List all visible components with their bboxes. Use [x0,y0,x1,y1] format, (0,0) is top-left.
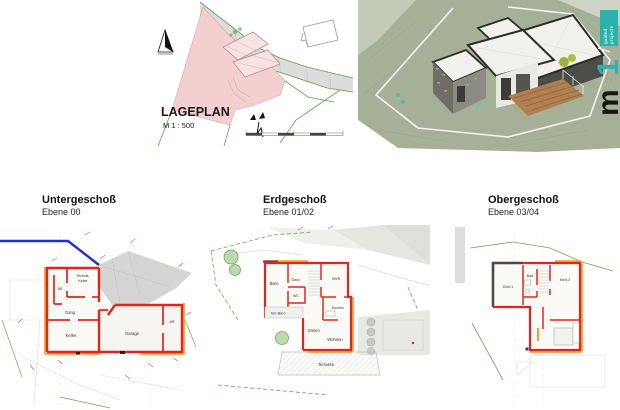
siteplan-scale: M 1 : 500 [163,121,194,130]
eg-room-terrasse: Terrasse [318,362,335,367]
plan-subtitle-untergeschoss: Ebene 00 [42,207,116,217]
plan-title-untergeschoss: Untergeschoß [42,194,116,207]
floorplan-erdgeschoss: Büro Gard. WC HWR Kochen Terr-Büro Essen… [208,225,430,410]
ug-room-ar-left: AR [58,287,63,291]
logo-letter-m: m [592,88,620,116]
eg-room-gard: Gard. [292,278,301,282]
plan-title-erdgeschoss: Erdgeschoß [263,194,327,207]
north-arrow-icon [158,30,173,54]
eg-kitchen-island [326,311,335,316]
eg-room-wc: WC [293,294,299,298]
og-blue-mark [526,348,529,351]
ug-door-mark-1 [76,352,80,355]
neighbour-building [301,20,338,47]
render-3d [358,0,620,152]
header-obergeschoss: Obergeschoß Ebene 03/04 [488,194,559,217]
ug-roof-overlay [99,251,192,309]
og-wardrobe [573,323,579,343]
eg-room-wohnen: Wohnen [327,337,343,342]
plan-title-obergeschoss: Obergeschoß [488,194,559,207]
ug-room-ar-right: AR [170,320,175,324]
ug-room-garage: Garage [125,331,140,336]
header-erdgeschoss: Erdgeschoß Ebene 01/02 [263,194,327,217]
svg-text:m 1: m 1 [592,58,620,116]
og-room-bad: Bad [527,274,533,278]
ug-room-technik-2: Keller [78,279,88,283]
eg-room-essen: Essen [308,328,320,333]
presentation-sheet: LAGEPLAN M 1 : 500 [0,0,620,410]
og-bed [554,328,573,345]
og-bath-wc [526,289,530,293]
brand-badge: guided projects [600,10,618,46]
plan-subtitle-erdgeschoss: Ebene 01/02 [263,207,327,217]
scale-bar [246,131,343,136]
plan-subtitle-obergeschoss: Ebene 03/04 [488,207,559,217]
ug-room-keller: Keller [66,333,77,338]
og-context-block [455,227,465,283]
eg-room-kochen: Kochen [332,306,344,310]
floorplan-untergeschoss: Technik- Keller AR Gang Keller Garage AR [0,225,205,410]
ug-room-gang: Gang [65,310,76,315]
og-room-kind1: Kind 1 [503,285,513,289]
header-untergeschoss: Untergeschoß Ebene 00 [42,194,116,217]
site-plan: LAGEPLAN M 1 : 500 [138,2,353,148]
ug-blue-boundary [0,241,99,265]
eg-room-hwr: HWR [332,277,341,281]
brand-badge-line2: projects [609,10,615,44]
ug-door-mark-2 [120,351,125,354]
eg-gravel-area [358,310,430,355]
floorplan-obergeschoss: Kind 1 Bad Kind 2 [455,225,620,410]
siteplan-title: LAGEPLAN [161,105,230,119]
ug-room-technik-1: Technik- [76,274,90,278]
og-bath-sink [525,280,531,285]
og-room-kind2: Kind 2 [560,278,570,282]
brand-logo-m1: m 1 [597,44,620,116]
eg-room-buero: Büro [270,281,280,286]
eg-room-terr-buero: Terr-Büro [271,312,286,316]
logo-digit-1: 1 [592,58,620,76]
